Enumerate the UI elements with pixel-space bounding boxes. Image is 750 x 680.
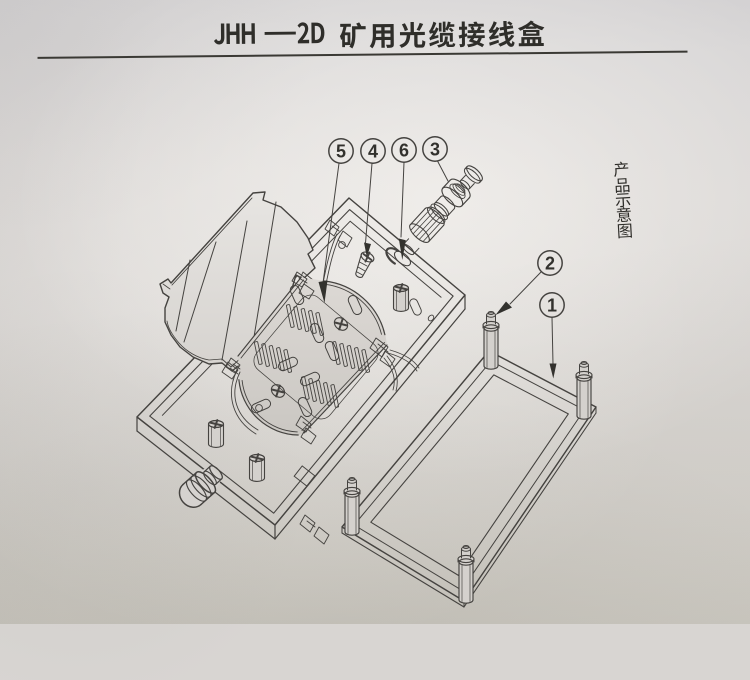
svg-text:3: 3 bbox=[430, 139, 440, 159]
svg-text:2: 2 bbox=[545, 253, 555, 273]
svg-text:1: 1 bbox=[547, 295, 557, 315]
svg-text:6: 6 bbox=[399, 140, 409, 160]
svg-text:4: 4 bbox=[368, 141, 378, 161]
svg-text:5: 5 bbox=[336, 141, 346, 161]
